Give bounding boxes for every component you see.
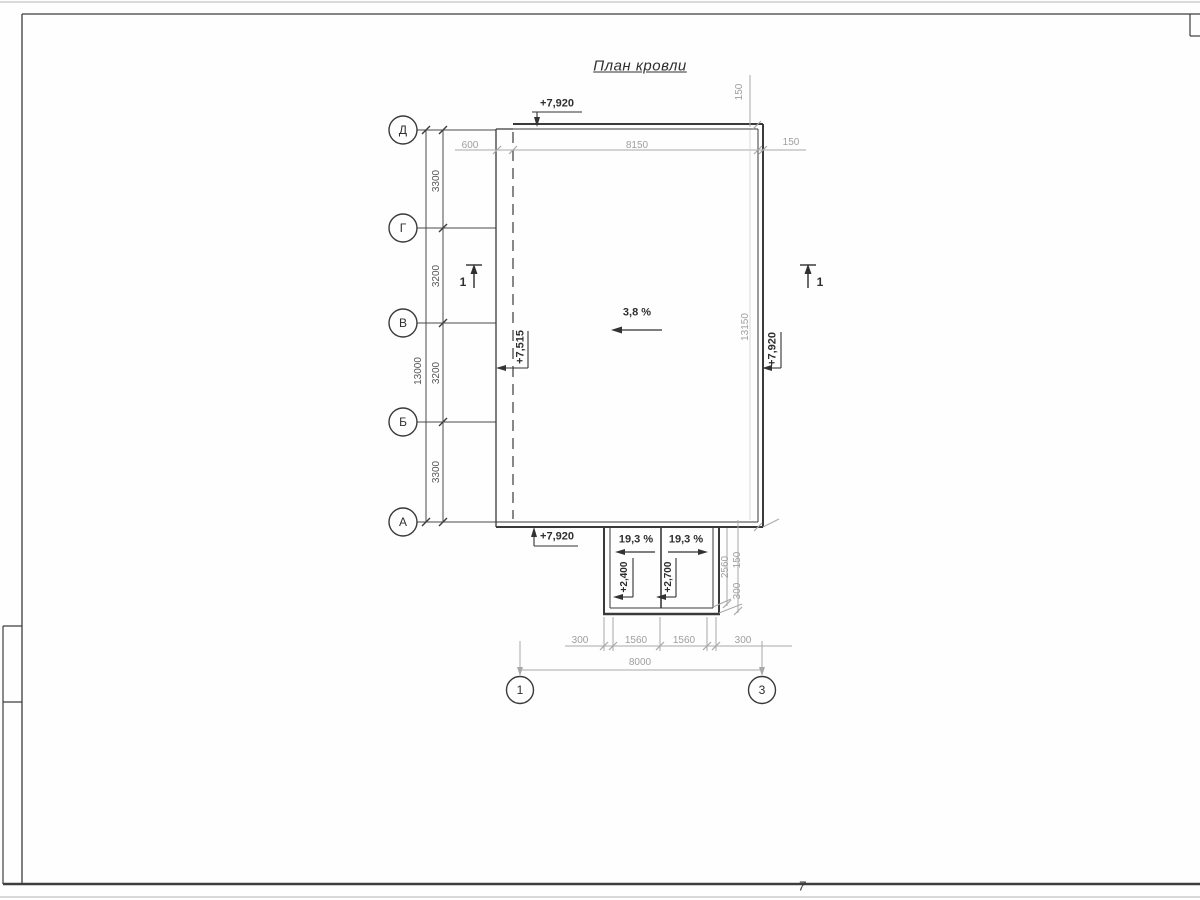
dim-canopy-2560: 2560	[721, 556, 731, 578]
dim-left-total: 13000	[414, 357, 424, 385]
axis-grid	[417, 126, 496, 526]
dim-bottom-total: 8000	[629, 658, 651, 668]
dim-left-seg-3: 3200	[432, 362, 442, 384]
dim-canopy-300: 300	[733, 583, 743, 600]
dim-top-right-parapet: 150	[735, 84, 745, 101]
dim-top-seg-2: 8150	[626, 141, 648, 151]
dim-bottom-seg-4: 300	[735, 636, 752, 646]
axis-label-g: Г	[400, 222, 407, 234]
dim-canopy-150: 150	[733, 552, 743, 569]
section-mark-label-right: 1	[817, 276, 824, 288]
axis-label-b: Б	[399, 416, 407, 428]
axis-circles	[389, 116, 776, 704]
dim-bottom-seg-3: 1560	[673, 636, 695, 646]
roof-outline	[496, 124, 763, 527]
scan-edges	[0, 2, 1200, 897]
elevation-canopy-right: +2,700	[664, 562, 674, 593]
drawing-sheet: План кровли Д Г В Б А 1 3 3300 3200 3200…	[0, 0, 1200, 900]
dim-left-seg-4: 3300	[432, 461, 442, 483]
slope-canopy-left: 19,3 %	[619, 535, 653, 546]
page-number: 7	[798, 880, 805, 893]
section-mark-label-left: 1	[460, 276, 467, 288]
elevation-canopy-left: +2,400	[620, 562, 630, 593]
slope-arrows	[611, 327, 708, 556]
elevation-roof-right: +7,920	[768, 332, 779, 366]
sheet-frame	[3, 14, 1200, 884]
elevation-roof-bottom: +7,920	[540, 532, 574, 543]
axis-label-a: А	[399, 516, 407, 528]
axis-label-3: 3	[759, 684, 766, 696]
dim-left-seg-2: 3200	[432, 265, 442, 287]
dim-top-seg-3: 150	[783, 138, 800, 148]
drawing-canvas	[0, 0, 1200, 900]
axis-label-v: В	[399, 317, 407, 329]
drawing-title: План кровли	[593, 59, 687, 74]
dim-bottom-seg-1: 300	[572, 636, 589, 646]
slope-canopy-right: 19,3 %	[669, 535, 703, 546]
slope-main: 3,8 %	[623, 308, 651, 319]
bottom-dimension-lines	[517, 617, 792, 676]
elevation-roof-left: +7,515	[516, 330, 527, 364]
elevation-roof-top: +7,920	[540, 99, 574, 110]
dim-right-height: 13150	[741, 313, 751, 341]
dim-left-seg-1: 3300	[432, 170, 442, 192]
axis-label-d: Д	[399, 124, 407, 136]
dim-bottom-seg-2: 1560	[625, 636, 647, 646]
dim-top-seg-1: 600	[462, 141, 479, 151]
axis-label-1: 1	[517, 684, 524, 696]
